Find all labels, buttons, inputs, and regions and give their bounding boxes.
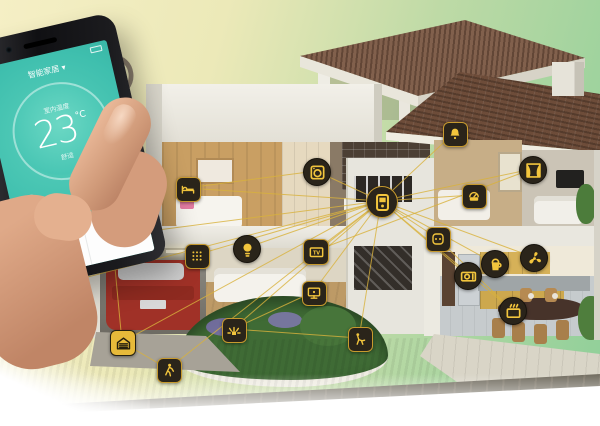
- alarm-bell-icon: [443, 122, 468, 147]
- microwave-oven-icon: [454, 262, 482, 290]
- garage-door-icon: [110, 330, 136, 356]
- temperature-unit: °C: [74, 110, 87, 121]
- motion-sensor-icon: [157, 358, 182, 383]
- bedroom-bed-icon: [176, 177, 201, 202]
- control-hub-icon: [366, 186, 398, 218]
- washing-machine-icon: [303, 158, 331, 186]
- ventilation-fan-icon: [520, 244, 548, 272]
- smart-oven-icon: [499, 297, 527, 325]
- lawn-mower-icon: [348, 327, 373, 352]
- svg-text:TV: TV: [312, 250, 319, 256]
- smart-curtains-icon: [519, 156, 547, 184]
- media-screen-icon: [302, 281, 327, 306]
- ceiling-light-icon: [233, 235, 261, 263]
- smart-tv-icon: TV: [303, 239, 329, 265]
- smart-kettle-icon: [481, 250, 509, 278]
- garden-sprinkler-icon: [222, 318, 247, 343]
- comfort-label: 舒适: [60, 149, 75, 162]
- wall-keypad-icon: [185, 244, 210, 269]
- energy-meter-icon: [462, 184, 487, 209]
- smart-socket-icon: [426, 227, 451, 252]
- smart-home-scene: TV 智能家居 ▾ 室内温度 23 °C 舒适: [0, 0, 600, 426]
- temperature-value: 23: [30, 109, 80, 155]
